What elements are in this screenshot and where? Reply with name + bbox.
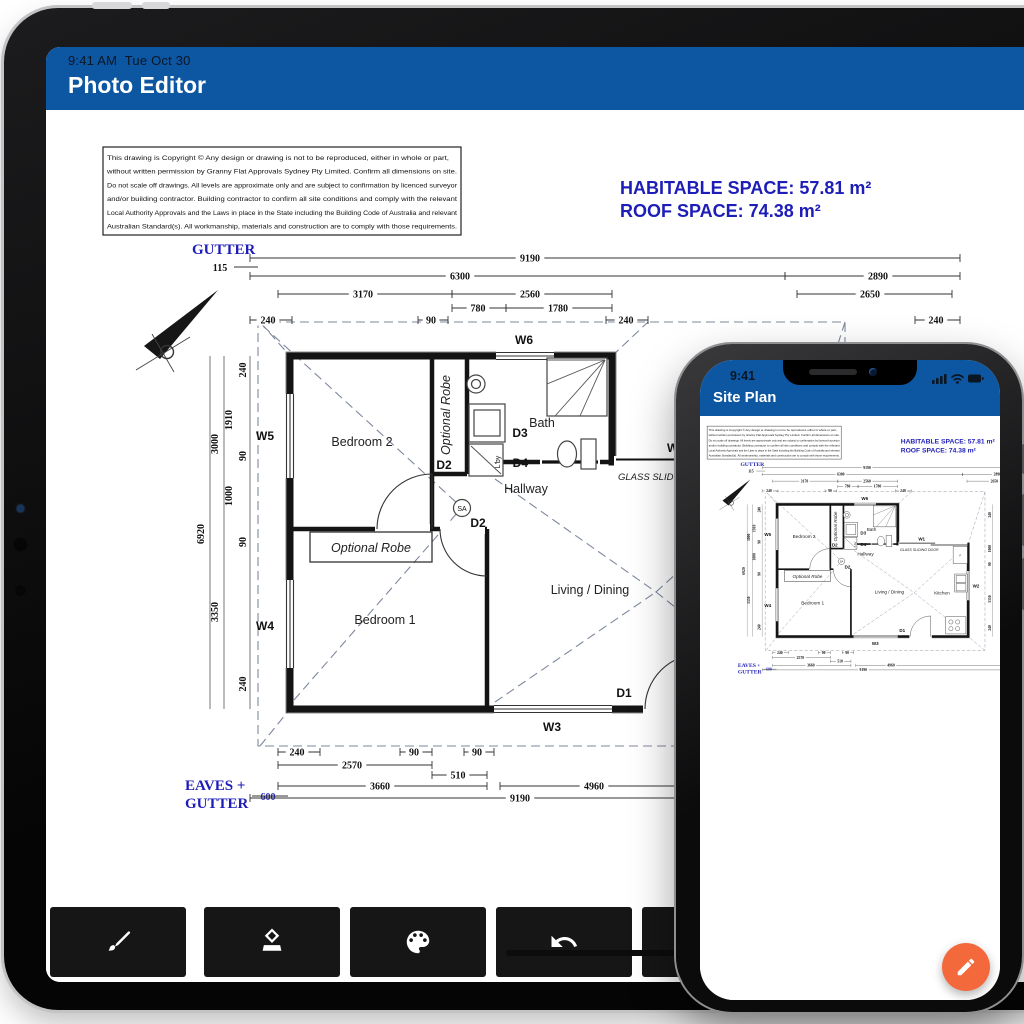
signal-icon <box>932 374 947 384</box>
dimension-label: 9190 <box>860 668 868 672</box>
dimension-label: 3660 <box>370 781 390 792</box>
dimension-label: 6300 <box>450 271 470 282</box>
photo-editor-header: 9:41 AM Tue Oct 30 Photo Editor <box>46 47 1024 110</box>
tablet-power-button <box>142 2 170 9</box>
gutter-label: GUTTER <box>740 462 765 468</box>
eaves-gutter-label: EAVES + <box>185 778 245 794</box>
tablet-status-time: 9:41 AM <box>68 53 117 68</box>
dimension-label: 90 <box>472 747 482 758</box>
dimension-label: 3660 <box>807 664 815 668</box>
dimension-label: 6920 <box>742 567 746 575</box>
window-label-w6: W6 <box>515 333 533 347</box>
dimension-label: 2560 <box>863 479 871 483</box>
room-label-bedroom2: Bedroom 2 <box>793 534 816 539</box>
gutter-offset-label: 115 <box>213 263 227 274</box>
room-label-robe: Optional Robe <box>833 511 838 541</box>
window-label-w1: W1 <box>918 536 925 541</box>
disclaimer-line: Local Authority Approvals and the Laws i… <box>709 450 840 453</box>
dimension-label: 240 <box>238 363 249 378</box>
disclaimer-line: and/or building contractor. Building con… <box>107 196 457 203</box>
palette-icon <box>403 927 433 957</box>
dimension-label: 780 <box>845 485 851 489</box>
dimension-label: 90 <box>238 537 249 547</box>
disclaimer-line: Do not scale off drawings. All levels ar… <box>709 439 840 442</box>
tablet-home-indicator[interactable] <box>506 950 696 956</box>
dimension-label: 90 <box>828 489 832 493</box>
room-label-bath: Bath <box>529 416 555 430</box>
floor-plan-svg: This drawing is Copyright © Any design o… <box>706 425 1000 713</box>
dimension-label: 1910 <box>224 410 235 430</box>
dimension-label: 240 <box>758 624 762 630</box>
phone-camera <box>869 368 877 376</box>
dimension-label: 2650 <box>991 479 999 483</box>
habitable-space-label: HABITABLE SPACE: 57.81 m² <box>620 178 871 198</box>
brush-icon <box>103 927 133 957</box>
dimension-label: 3170 <box>353 289 373 300</box>
dimension-label: 1000 <box>224 486 235 506</box>
roof-space-label: ROOF SPACE: 74.38 m² <box>620 201 821 221</box>
dimension-label: 240 <box>261 315 276 326</box>
habitable-space-label: HABITABLE SPACE: 57.81 m² <box>901 439 996 446</box>
dimension-label: 90 <box>409 747 419 758</box>
eaves-offset-label: 600 <box>766 668 772 672</box>
eaves-gutter-label: GUTTER <box>738 670 763 676</box>
window-label-w4: W4 <box>256 619 274 633</box>
phone-status-icons <box>932 371 984 389</box>
room-label-kitchen: Kitchen <box>934 591 950 596</box>
dimension-label: 3000 <box>210 434 221 454</box>
glass-sliding-door-label: GLASS SLIDING DOOR <box>900 548 939 552</box>
screenshot-stage: 9:41 AM Tue Oct 30 Photo Editor This dra… <box>0 0 1024 1024</box>
dimension-label: 6300 <box>837 473 845 477</box>
phone-screen: 9:41 <box>700 360 1000 1000</box>
gutter-label: GUTTER <box>192 242 256 258</box>
floor-plan-thumbnail: This drawing is Copyright © Any design o… <box>706 425 1000 718</box>
window-label-w2: W2 <box>973 584 980 589</box>
dimension-label: 4960 <box>887 664 895 668</box>
dimension-label: 1000 <box>988 545 992 553</box>
room-label-robe2: Optional Robe <box>793 574 823 579</box>
window-label-w3: W3 <box>543 720 561 734</box>
window-label-w5: W5 <box>764 532 771 537</box>
window-label-w4: W4 <box>764 603 771 608</box>
room-label-bath: Bath <box>867 527 877 532</box>
room-label-robe: Optional Robe <box>439 375 453 455</box>
pencil-icon <box>955 956 977 978</box>
window-label-w5: W5 <box>256 429 274 443</box>
dimension-label: 240 <box>290 747 305 758</box>
dimension-label: 240 <box>900 489 906 493</box>
door-label-d3: D3 <box>860 531 866 536</box>
disclaimer-line: without written permission by Granny Fla… <box>106 169 457 176</box>
room-label-living: Living / Dining <box>875 590 905 595</box>
tablet-status-bar: 9:41 AM Tue Oct 30 <box>68 53 191 68</box>
window-label-w6: W6 <box>861 496 868 501</box>
room-label-bedroom2: Bedroom 2 <box>331 435 392 449</box>
dimension-label: 90 <box>822 651 826 655</box>
dimension-label: 240 <box>777 651 783 655</box>
dimension-label: 2560 <box>520 289 540 300</box>
dimension-label: 9190 <box>510 793 530 804</box>
dimension-label: 3350 <box>747 596 751 604</box>
dimension-label: 3170 <box>801 479 809 483</box>
disclaimer-line: This drawing is Copyright © Any design o… <box>709 429 837 432</box>
eaves-offset-label: 600 <box>261 792 276 803</box>
door-label-d4: D4 <box>861 542 867 547</box>
disclaimer-line: Australian Standard(s). All workmanship,… <box>107 224 457 231</box>
disclaimer-line: Australian Standard(s). All workmanship,… <box>709 455 840 458</box>
dimension-label: 3000 <box>747 533 751 541</box>
dimension-label: 1000 <box>752 553 756 561</box>
dimension-label: 240 <box>766 489 772 493</box>
smoke-alarm-label: SA <box>457 506 467 513</box>
dimension-label: 90 <box>238 451 249 461</box>
roof-space-label: ROOF SPACE: 74.38 m² <box>901 447 977 454</box>
door-label-d2: D2 <box>436 458 452 472</box>
dimension-label: 3350 <box>210 602 221 622</box>
room-label-hallway: Hallway <box>857 552 874 557</box>
eraser-tool-button[interactable] <box>204 907 340 977</box>
tablet-camera-glint <box>17 505 24 512</box>
wifi-icon <box>952 375 963 383</box>
dimension-label: 240 <box>619 315 634 326</box>
dimension-label: 90 <box>988 562 992 566</box>
eaves-gutter-label: EAVES + <box>738 663 761 669</box>
room-label-bedroom1: Bedroom 1 <box>801 601 824 606</box>
eaves-gutter-label: GUTTER <box>185 796 249 812</box>
window-label-w3: W3 <box>872 641 879 646</box>
dimension-label: 6920 <box>196 524 207 544</box>
dimension-label: 4960 <box>584 781 604 792</box>
tablet-camera-lens-2 <box>14 584 27 597</box>
dimension-label: 2650 <box>860 289 880 300</box>
dimension-label: 240 <box>238 677 249 692</box>
tablet-camera-lens <box>12 536 29 553</box>
door-label-d1: D1 <box>616 686 632 700</box>
dimension-label: 240 <box>758 507 762 513</box>
dimension-label: 510 <box>451 770 466 781</box>
phone-device: 9:41 <box>676 344 1022 1012</box>
dimension-label: 240 <box>988 625 992 631</box>
dimension-label: 2570 <box>797 656 805 660</box>
door-label-d2b: D2 <box>845 564 851 569</box>
dimension-label: 9190 <box>863 466 871 470</box>
dimension-label: 3350 <box>988 595 992 603</box>
door-label-d2b: D2 <box>470 516 486 530</box>
dimension-label: 90 <box>426 315 436 326</box>
phone-status-time: 9:41 <box>730 369 755 383</box>
laundry-label: L'by <box>495 455 502 468</box>
dimension-label: 2890 <box>994 473 1000 477</box>
brush-tool-button[interactable] <box>50 907 186 977</box>
dimension-label: 240 <box>988 512 992 518</box>
dimension-label: 90 <box>758 540 762 544</box>
dimension-label: 2890 <box>868 271 888 282</box>
disclaimer-line: and/or building contractor. Building con… <box>709 444 840 447</box>
disclaimer-line: Do not scale off drawings. All levels ar… <box>107 182 458 189</box>
door-label-d1: D1 <box>899 628 905 633</box>
dimension-label: 90 <box>845 651 849 655</box>
disclaimer-line: This drawing is Copyright © Any design o… <box>107 154 449 162</box>
dimension-label: 90 <box>758 572 762 576</box>
room-label-robe2: Optional Robe <box>331 541 411 555</box>
battery-icon <box>968 375 984 383</box>
dimension-label: 2570 <box>342 760 362 771</box>
palette-tool-button[interactable] <box>350 907 486 977</box>
dimension-label: 780 <box>471 303 486 314</box>
dimension-label: 1780 <box>874 485 882 489</box>
eraser-icon <box>257 927 287 957</box>
tablet-status-date: Tue Oct 30 <box>125 53 191 68</box>
phone-speaker <box>809 369 857 375</box>
disclaimer-line: Local Authority Approvals and the Laws i… <box>107 210 457 217</box>
site-plan-title: Site Plan <box>713 389 776 406</box>
undo-button[interactable] <box>496 907 632 977</box>
gutter-offset-label: 115 <box>748 470 754 474</box>
room-label-hallway: Hallway <box>504 482 549 496</box>
dimension-label: 1910 <box>752 524 756 532</box>
dimension-label: 1780 <box>548 303 568 314</box>
room-label-bedroom1: Bedroom 1 <box>354 613 415 627</box>
disclaimer-line: without written permission by Granny Fla… <box>709 434 840 437</box>
dimension-label: 510 <box>837 660 843 664</box>
phone-notch <box>783 360 917 385</box>
dimension-label: 240 <box>929 315 944 326</box>
site-plan-content[interactable]: This drawing is Copyright © Any design o… <box>700 416 1000 1000</box>
room-label-living: Living / Dining <box>551 583 630 597</box>
tablet-volume-button <box>92 2 132 9</box>
dimension-label: 9190 <box>520 253 540 264</box>
door-label-d3: D3 <box>512 426 528 440</box>
edit-fab-button[interactable] <box>942 943 990 991</box>
door-label-d2: D2 <box>832 543 838 548</box>
door-label-d4: D4 <box>513 456 529 470</box>
photo-editor-title: Photo Editor <box>68 72 206 99</box>
